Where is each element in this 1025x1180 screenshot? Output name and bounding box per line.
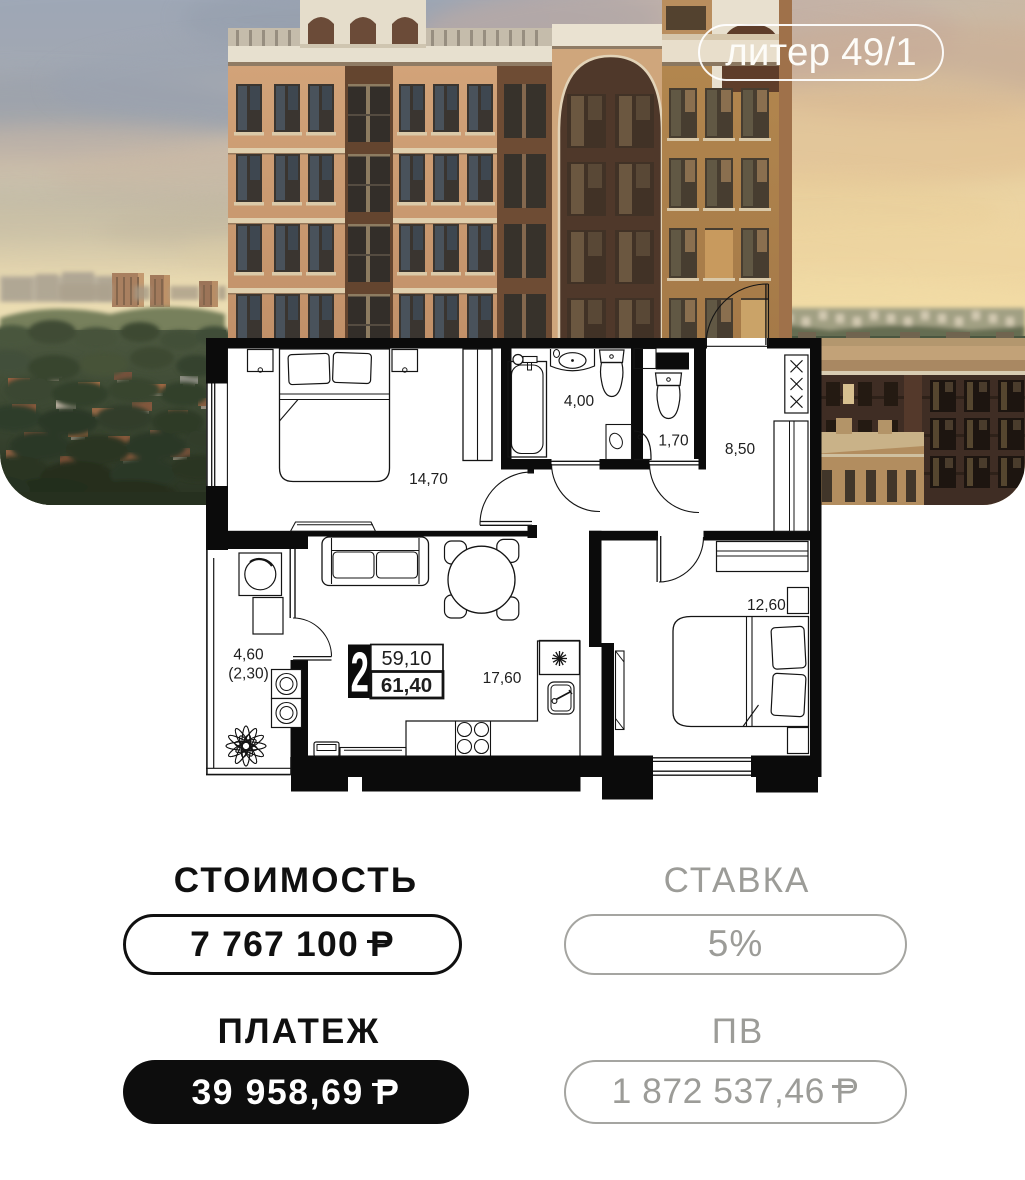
svg-text:59,10: 59,10 bbox=[381, 648, 431, 670]
svg-text:61,40: 61,40 bbox=[381, 674, 432, 697]
svg-text:8,50: 8,50 bbox=[725, 441, 756, 458]
svg-text:17,60: 17,60 bbox=[483, 670, 522, 687]
svg-text:12,60: 12,60 bbox=[747, 597, 786, 614]
svg-text:2: 2 bbox=[351, 640, 369, 704]
svg-text:1,70: 1,70 bbox=[658, 433, 689, 450]
svg-text:(2,30): (2,30) bbox=[228, 666, 269, 683]
svg-text:14,70: 14,70 bbox=[409, 471, 448, 488]
svg-text:4,00: 4,00 bbox=[564, 393, 595, 410]
svg-text:4,60: 4,60 bbox=[233, 647, 264, 664]
